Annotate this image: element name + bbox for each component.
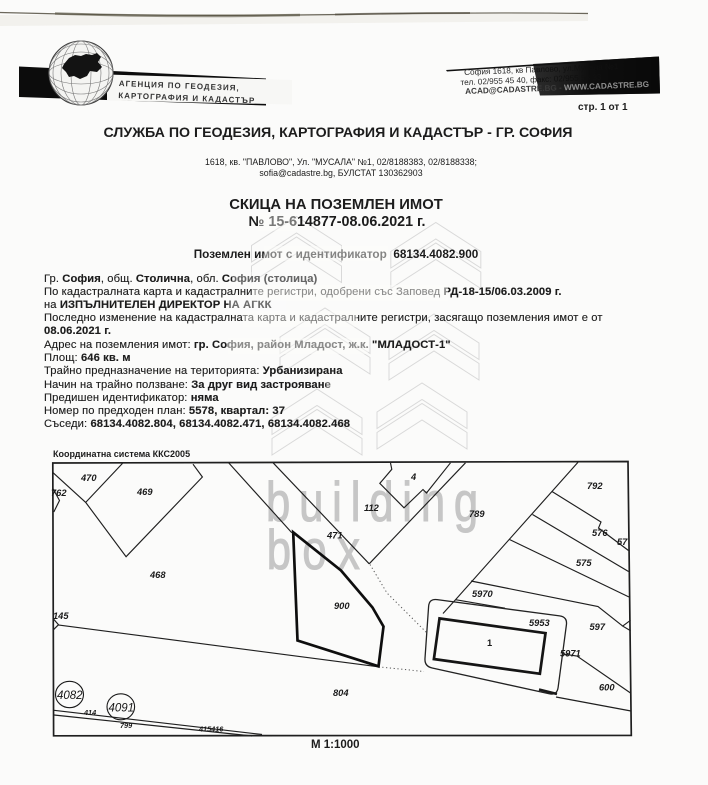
svg-text:5971: 5971	[560, 649, 581, 659]
svg-text:1: 1	[487, 638, 492, 648]
svg-text:575: 575	[576, 558, 592, 568]
svg-text:470: 470	[80, 473, 97, 483]
svg-text:414: 414	[83, 708, 96, 717]
svg-text:762: 762	[51, 488, 67, 498]
svg-text:799: 799	[120, 721, 133, 730]
svg-text:469: 469	[136, 487, 153, 497]
svg-text:792: 792	[587, 481, 603, 491]
svg-text:145: 145	[53, 611, 69, 621]
svg-text:112: 112	[364, 503, 380, 513]
svg-text:57: 57	[617, 537, 628, 547]
svg-text:5953: 5953	[529, 618, 551, 628]
svg-text:597: 597	[590, 622, 606, 632]
svg-text:468: 468	[149, 570, 166, 580]
svg-text:600: 600	[599, 683, 615, 693]
svg-text:804: 804	[333, 688, 349, 698]
svg-text:5970: 5970	[472, 589, 494, 599]
svg-text:576: 576	[592, 528, 608, 538]
svg-text:4091: 4091	[109, 702, 135, 714]
svg-text:789: 789	[469, 509, 485, 519]
svg-text:471: 471	[326, 531, 343, 541]
svg-text:4082: 4082	[57, 690, 83, 702]
svg-text:415416: 415416	[198, 725, 224, 734]
svg-text:4: 4	[410, 472, 417, 482]
svg-text:900: 900	[334, 601, 350, 611]
